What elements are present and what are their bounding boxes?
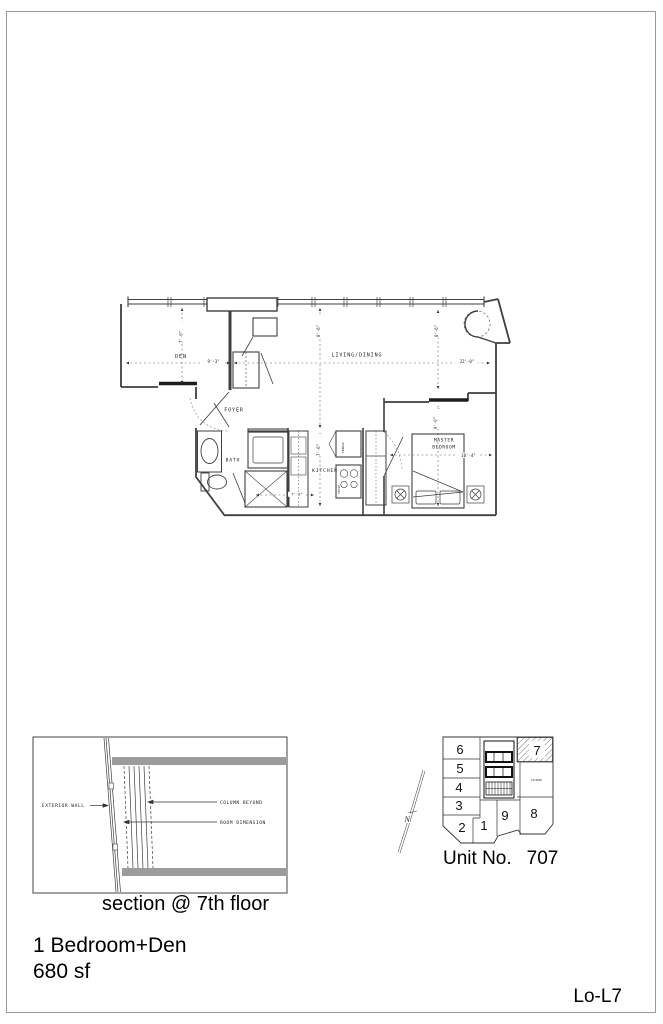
bedroom-width-dim: 10'-4" xyxy=(461,453,475,458)
unit-number-value: 707 xyxy=(527,848,559,870)
key-plan-drawing: N 6 5 4 3 2 1 9 8 7 LOCKERS xyxy=(390,725,570,850)
light-symbol xyxy=(392,486,409,503)
bath-width-dim: 7'-0" xyxy=(291,492,302,497)
bedroom-depth-dim: 9'-0" xyxy=(433,417,438,429)
key-unit-8: 8 xyxy=(530,806,537,821)
sheet-code: Lo-L7 xyxy=(573,986,622,1008)
sink-basin xyxy=(201,439,218,464)
lockers-label: LOCKERS xyxy=(531,778,542,782)
north-label: N xyxy=(404,815,411,824)
elevator-bank xyxy=(486,752,512,762)
unit-area-title: 680 sf xyxy=(33,960,90,984)
den-width-dim: 9'-3" xyxy=(207,359,219,364)
section-detail-drawing: EXTERIOR WALL COLUMN BEYOND ROOM DIMENSI… xyxy=(30,735,290,897)
master-label-2: BEDROOM xyxy=(432,445,456,451)
unit-number-label: Unit No. xyxy=(443,848,512,870)
den-walls xyxy=(230,311,277,390)
fridge xyxy=(336,431,361,457)
floor-slab-lower xyxy=(122,868,286,876)
key-unit-1: 1 xyxy=(480,818,487,833)
living-dining-label: LIVING/DINING xyxy=(332,353,383,359)
washer-dryer-closet xyxy=(248,429,288,468)
north-arrow xyxy=(398,770,425,853)
pillow xyxy=(416,491,436,504)
unit-type-title: 1 Bedroom+Den xyxy=(33,934,187,958)
key-unit-6: 6 xyxy=(456,742,463,757)
round-column xyxy=(464,311,496,343)
toilet-bowl xyxy=(208,475,227,489)
living-depth-left-dim: 8'-6" xyxy=(316,325,321,337)
master-label-1: MASTER xyxy=(434,438,454,444)
section-caption: section @ 7th floor xyxy=(102,893,269,916)
shaft-bump xyxy=(207,298,277,311)
kitchen-depth-dim: 7'-6" xyxy=(316,444,321,456)
key-unit-2: 2 xyxy=(458,820,465,835)
unit-number-caption: Unit No. 707 xyxy=(443,848,558,870)
elevator-bank xyxy=(486,767,512,777)
stove-label: STOVE xyxy=(337,485,341,494)
column-beyond-label: COLUMN BEYOND xyxy=(220,800,262,806)
living-width-dim: 22'-0" xyxy=(460,359,474,364)
key-unit-3: 3 xyxy=(455,798,462,813)
light-symbol xyxy=(467,486,484,503)
key-unit-9: 9 xyxy=(501,808,508,823)
key-unit-7: 7 xyxy=(533,743,540,758)
exterior-wall-label: EXTERIOR WALL xyxy=(42,803,84,809)
floor-plan-drawing: DEN LIVING/DINING FOYER BATH KITCHEN MAS… xyxy=(105,283,520,533)
floor-slab-upper xyxy=(112,757,286,765)
room-dimension-label: ROOM DIMENSION xyxy=(220,820,266,826)
stairs xyxy=(486,782,512,795)
living-depth-right-dim: 8'-6" xyxy=(434,325,439,337)
den-label: DEN xyxy=(175,354,187,360)
fridge-label: FRIDGE xyxy=(341,442,345,453)
bath-label: BATH xyxy=(226,458,241,464)
key-unit-4: 4 xyxy=(455,780,462,795)
foyer-label: FOYER xyxy=(224,408,244,414)
kitchen-label: KITCHEN xyxy=(312,468,338,474)
bathroom xyxy=(198,403,289,507)
window-wall xyxy=(128,297,484,312)
key-unit-5: 5 xyxy=(456,761,463,776)
core xyxy=(484,741,514,798)
den-depth-dim: 7'-0" xyxy=(179,331,184,343)
